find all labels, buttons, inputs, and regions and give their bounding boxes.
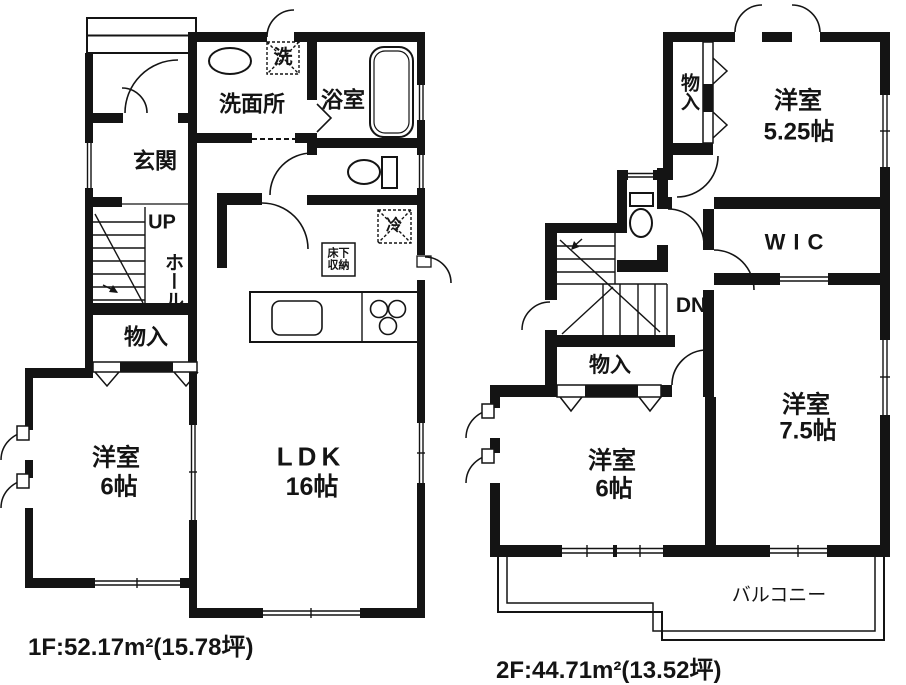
casement-windows-west	[1, 426, 29, 508]
kitchen-counter-icon	[250, 292, 418, 342]
floor1-area-caption: 1F:52.17m²(15.78坪)	[28, 627, 253, 662]
label-fridge-box: 冷	[386, 219, 402, 236]
label-room525-name: 洋室	[774, 88, 822, 113]
window-west-room-bottom	[95, 578, 180, 588]
label-hall-vertical: ホール	[162, 253, 182, 310]
entrance-porch-steps	[87, 18, 196, 53]
label-room75-size: 7.5帖	[779, 418, 836, 443]
staircase-up	[93, 207, 145, 303]
floor1-walls	[25, 32, 425, 618]
label-washroom: 洗面所	[219, 92, 285, 115]
label-stairs-down: DN	[676, 295, 706, 317]
floor2-area-caption: 2F:44.71m²(13.52坪)	[496, 650, 721, 685]
window-toilet-right	[420, 155, 424, 188]
closet-bifold-doors-2f-mid	[557, 385, 661, 411]
label-room6-size: 6帖	[595, 476, 632, 501]
label-ldk-size: 16帖	[286, 474, 339, 500]
hall-ldk-door-arc	[262, 203, 308, 249]
back-door-arc	[267, 10, 294, 37]
window-525-right	[880, 95, 890, 167]
room525-door-arc	[677, 156, 718, 197]
label-underfloor-storage: 床下収納	[327, 248, 351, 271]
room525-top-doors	[735, 5, 820, 32]
window-bath-right	[420, 85, 424, 120]
entrance-window	[88, 143, 92, 188]
label-ldk-name: LDK	[277, 443, 345, 470]
wic-opening	[780, 277, 828, 281]
sliding-door-west-ldk	[189, 425, 197, 520]
toilet-icon-2f	[628, 174, 653, 238]
label-wic: WIC	[765, 230, 832, 253]
window-ldk-bottom	[263, 608, 360, 618]
closet-bifold-doors-1f	[93, 362, 198, 386]
room6-door-arc	[672, 350, 707, 385]
label-entrance: 玄関	[133, 149, 177, 172]
label-room6-name: 洋室	[588, 448, 636, 473]
label-west-room-name: 洋室	[92, 445, 140, 470]
window-75-right	[880, 340, 890, 415]
toilet-door-arc-1f	[270, 153, 312, 195]
closet-bifold-doors-2f-top	[703, 42, 727, 143]
casement-windows-room6	[466, 404, 494, 483]
label-washer-box: 洗	[273, 48, 292, 68]
toilet-door-arc-2f	[668, 209, 704, 245]
staircase-down	[557, 233, 667, 335]
toilet-icon-1f	[348, 157, 397, 188]
label-balcony: バルコニー	[732, 586, 827, 606]
label-room525-size: 5.25帖	[764, 119, 835, 144]
label-room75-name: 洋室	[782, 392, 830, 417]
ldk-side-door	[417, 256, 451, 283]
label-closet-top-2f: 物入	[678, 73, 698, 111]
label-stairs-up: UP	[148, 213, 176, 234]
sink-icon	[209, 48, 251, 74]
entrance-door-arc	[122, 60, 188, 204]
label-west-room-size: 6帖	[100, 474, 137, 499]
label-closet-mid-2f: 物入	[589, 355, 631, 377]
casement-window-stairhall	[522, 302, 550, 330]
window-ldk-right	[417, 423, 425, 483]
label-bathroom: 浴室	[321, 88, 365, 111]
bathtub-icon	[370, 47, 413, 137]
floorplan-canvas: 洗面所 浴室 洗 玄関 UP ホール 物入 洋室 6帖 LDK 16帖 冷 床下…	[0, 0, 906, 685]
label-storage-1f: 物入	[124, 325, 168, 348]
